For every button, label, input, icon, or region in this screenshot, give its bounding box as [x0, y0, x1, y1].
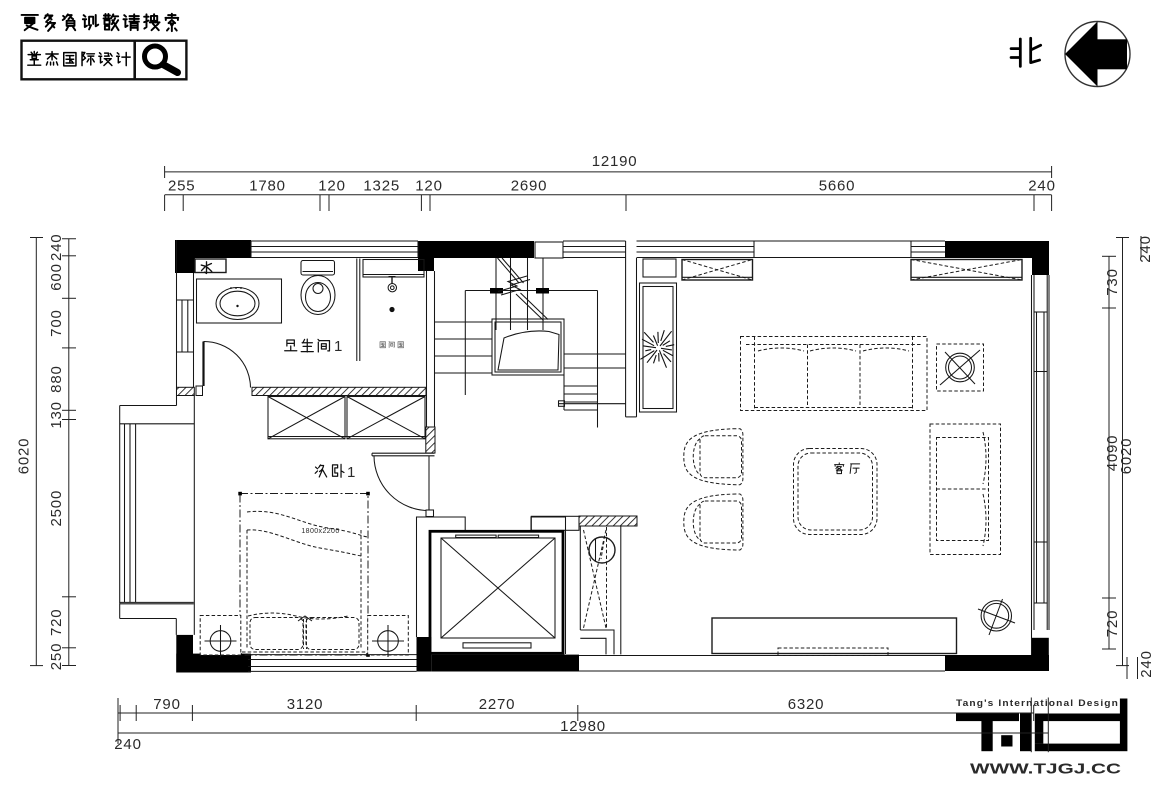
- svg-text:240: 240: [1137, 235, 1154, 262]
- svg-text:12190: 12190: [592, 153, 638, 170]
- svg-text:1: 1: [347, 464, 356, 481]
- svg-text:250: 250: [48, 643, 65, 670]
- svg-text:6020: 6020: [16, 438, 33, 475]
- svg-text:1800x2200: 1800x2200: [301, 528, 339, 535]
- svg-text:3120: 3120: [287, 696, 324, 713]
- svg-text:240: 240: [1138, 650, 1155, 677]
- svg-text:790: 790: [153, 696, 180, 713]
- svg-text:720: 720: [48, 609, 65, 636]
- svg-text:240: 240: [48, 234, 65, 261]
- svg-text:120: 120: [415, 178, 442, 195]
- svg-text:255: 255: [168, 178, 195, 195]
- svg-text:120: 120: [318, 178, 345, 195]
- svg-text:2500: 2500: [48, 490, 65, 527]
- svg-text:1780: 1780: [249, 178, 286, 195]
- svg-text:5660: 5660: [819, 178, 856, 195]
- svg-text:720: 720: [1104, 610, 1121, 637]
- svg-text:600: 600: [48, 263, 65, 290]
- svg-text:730: 730: [1104, 268, 1121, 295]
- svg-text:880: 880: [48, 365, 65, 392]
- svg-text:2690: 2690: [511, 178, 548, 195]
- svg-text:130: 130: [48, 401, 65, 428]
- svg-text:1: 1: [334, 338, 343, 355]
- svg-text:700: 700: [48, 309, 65, 336]
- svg-text:6020: 6020: [1118, 438, 1135, 475]
- svg-text:2270: 2270: [479, 696, 516, 713]
- svg-text:Tang's International Design: Tang's International Design: [956, 698, 1119, 708]
- svg-text:240: 240: [114, 736, 141, 753]
- svg-text:1325: 1325: [363, 178, 400, 195]
- svg-text:240: 240: [1028, 178, 1055, 195]
- svg-text:6320: 6320: [788, 696, 825, 713]
- svg-text:12980: 12980: [560, 718, 606, 735]
- svg-text:WWW.TJGJ.CC: WWW.TJGJ.CC: [970, 761, 1121, 778]
